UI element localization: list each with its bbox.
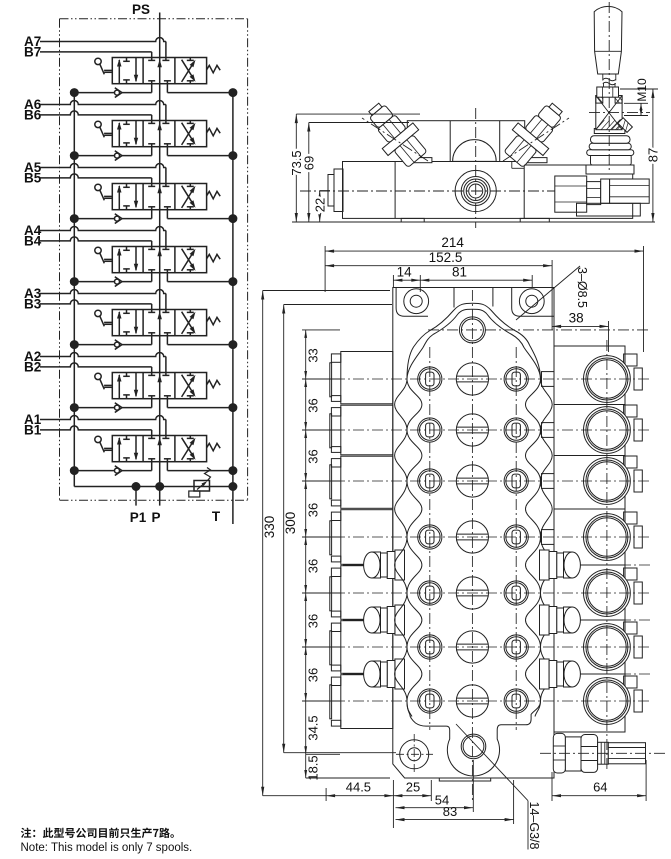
svg-text:B7: B7 (24, 44, 41, 59)
svg-text:B4: B4 (24, 233, 42, 248)
svg-text:B1: B1 (24, 422, 42, 437)
svg-text:36: 36 (306, 614, 321, 628)
svg-text:152.5: 152.5 (429, 250, 463, 265)
svg-text:36: 36 (306, 503, 321, 517)
svg-text:83: 83 (443, 804, 457, 819)
svg-text:33: 33 (305, 348, 320, 362)
svg-text:36: 36 (306, 449, 321, 463)
svg-text:B2: B2 (24, 359, 41, 374)
svg-text:3–Ø8.5: 3–Ø8.5 (575, 267, 589, 308)
svg-text:B5: B5 (24, 170, 42, 185)
svg-text:M10: M10 (635, 78, 649, 102)
svg-text:38: 38 (569, 311, 584, 326)
svg-text:64: 64 (593, 780, 607, 795)
svg-text:34.5: 34.5 (306, 715, 321, 740)
svg-text:14–G3/8: 14–G3/8 (527, 802, 541, 850)
svg-text:T: T (212, 509, 221, 524)
svg-text:81: 81 (452, 265, 467, 280)
svg-text:44.5: 44.5 (346, 780, 371, 795)
svg-text:Note: This model is only 7 spo: Note: This model is only 7 spools. (21, 842, 193, 854)
svg-text:P: P (151, 510, 160, 525)
svg-text:18.5: 18.5 (306, 755, 321, 780)
svg-text:214: 214 (441, 235, 464, 250)
svg-text:B6: B6 (24, 107, 42, 122)
svg-text:14: 14 (397, 265, 413, 280)
svg-text:36: 36 (306, 668, 321, 682)
svg-text:330: 330 (262, 516, 277, 539)
svg-text:25: 25 (406, 780, 420, 795)
svg-text:300: 300 (283, 512, 298, 535)
svg-text:87: 87 (646, 148, 661, 162)
svg-text:22: 22 (313, 198, 328, 212)
svg-text:36: 36 (306, 559, 321, 573)
svg-text:36: 36 (306, 398, 321, 412)
svg-text:P1: P1 (130, 510, 147, 525)
svg-text:PS: PS (132, 2, 150, 17)
svg-text:B3: B3 (24, 296, 42, 311)
svg-text:69: 69 (302, 156, 317, 170)
